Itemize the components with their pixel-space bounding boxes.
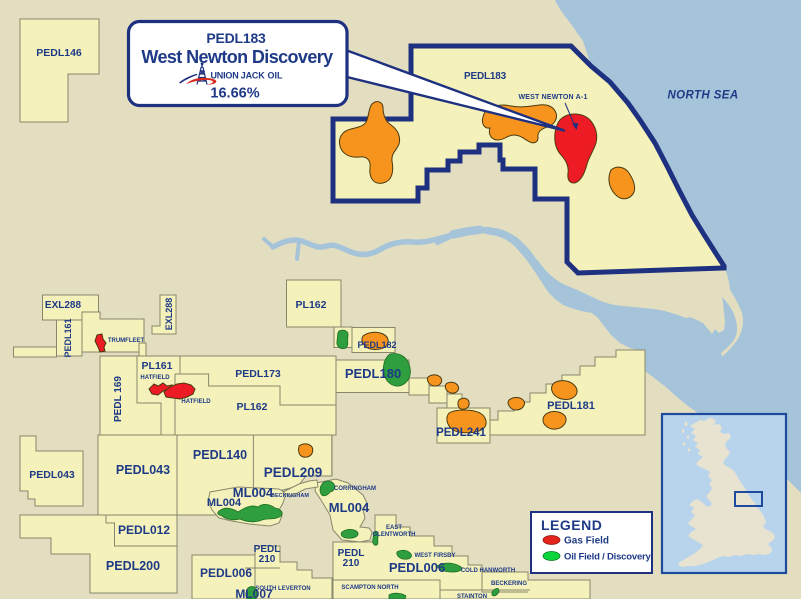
svg-text:210: 210 bbox=[343, 558, 360, 569]
svg-text:STAINTON: STAINTON bbox=[457, 594, 487, 599]
svg-text:PEDL209: PEDL209 bbox=[264, 465, 323, 480]
svg-text:PEDL043: PEDL043 bbox=[116, 463, 170, 477]
svg-text:PEDL181: PEDL181 bbox=[547, 400, 595, 412]
svg-text:OIL: OIL bbox=[268, 71, 284, 81]
svg-text:EXL288: EXL288 bbox=[45, 300, 82, 311]
svg-text:PL162: PL162 bbox=[296, 299, 327, 311]
svg-text:PEDL241: PEDL241 bbox=[436, 427, 486, 439]
svg-text:PL161: PL161 bbox=[142, 360, 173, 372]
svg-text:BECKERING: BECKERING bbox=[491, 581, 527, 587]
svg-text:PEDL006: PEDL006 bbox=[200, 566, 252, 580]
svg-text:EAST: EAST bbox=[386, 525, 402, 531]
svg-text:HATFIELD: HATFIELD bbox=[140, 375, 170, 381]
svg-text:PL162: PL162 bbox=[237, 401, 268, 413]
svg-text:PEDL012: PEDL012 bbox=[118, 523, 170, 537]
svg-text:ML004: ML004 bbox=[207, 497, 242, 509]
svg-text:COLD HANWORTH: COLD HANWORTH bbox=[461, 568, 515, 574]
svg-text:PEDL140: PEDL140 bbox=[193, 448, 247, 462]
svg-text:BECKINGHAM: BECKINGHAM bbox=[271, 493, 309, 499]
svg-text:LEGEND: LEGEND bbox=[541, 517, 602, 533]
svg-text:PEDL043: PEDL043 bbox=[29, 469, 75, 481]
svg-text:CORRINGHAM: CORRINGHAM bbox=[334, 486, 376, 492]
svg-text:PEDL183: PEDL183 bbox=[206, 30, 266, 46]
svg-text:PEDL006: PEDL006 bbox=[389, 560, 445, 575]
svg-text:EXL288: EXL288 bbox=[164, 298, 174, 331]
svg-text:TRUMFLEET: TRUMFLEET bbox=[108, 338, 145, 344]
svg-text:NORTH SEA: NORTH SEA bbox=[667, 90, 738, 102]
svg-text:PEDL 169: PEDL 169 bbox=[113, 376, 124, 422]
svg-text:PEDL182: PEDL182 bbox=[357, 340, 396, 350]
svg-text:West Newton Discovery: West Newton Discovery bbox=[141, 47, 333, 67]
svg-text:Gas Field: Gas Field bbox=[564, 536, 609, 547]
svg-text:HATFIELD: HATFIELD bbox=[181, 399, 211, 405]
svg-text:210: 210 bbox=[259, 554, 276, 565]
svg-text:PEDL200: PEDL200 bbox=[106, 559, 160, 573]
svg-text:WEST FIRSBY: WEST FIRSBY bbox=[414, 553, 455, 559]
svg-text:PEDL146: PEDL146 bbox=[36, 47, 82, 59]
svg-text:ML007: ML007 bbox=[235, 587, 273, 599]
svg-text:PEDL161: PEDL161 bbox=[63, 318, 73, 357]
svg-text:SCAMPTON NORTH: SCAMPTON NORTH bbox=[341, 585, 398, 591]
svg-text:UNION JACK: UNION JACK bbox=[211, 71, 266, 81]
svg-text:16.66%: 16.66% bbox=[210, 86, 259, 102]
svg-text:PEDL183: PEDL183 bbox=[464, 71, 507, 82]
svg-text:WEST NEWTON A-1: WEST NEWTON A-1 bbox=[518, 94, 587, 101]
svg-text:Oil Field / Discovery: Oil Field / Discovery bbox=[564, 552, 652, 563]
svg-text:PEDL173: PEDL173 bbox=[235, 368, 281, 380]
svg-text:PEDL180: PEDL180 bbox=[345, 366, 401, 381]
svg-text:ML004: ML004 bbox=[329, 500, 370, 515]
svg-text:GLENTWORTH: GLENTWORTH bbox=[373, 532, 416, 538]
